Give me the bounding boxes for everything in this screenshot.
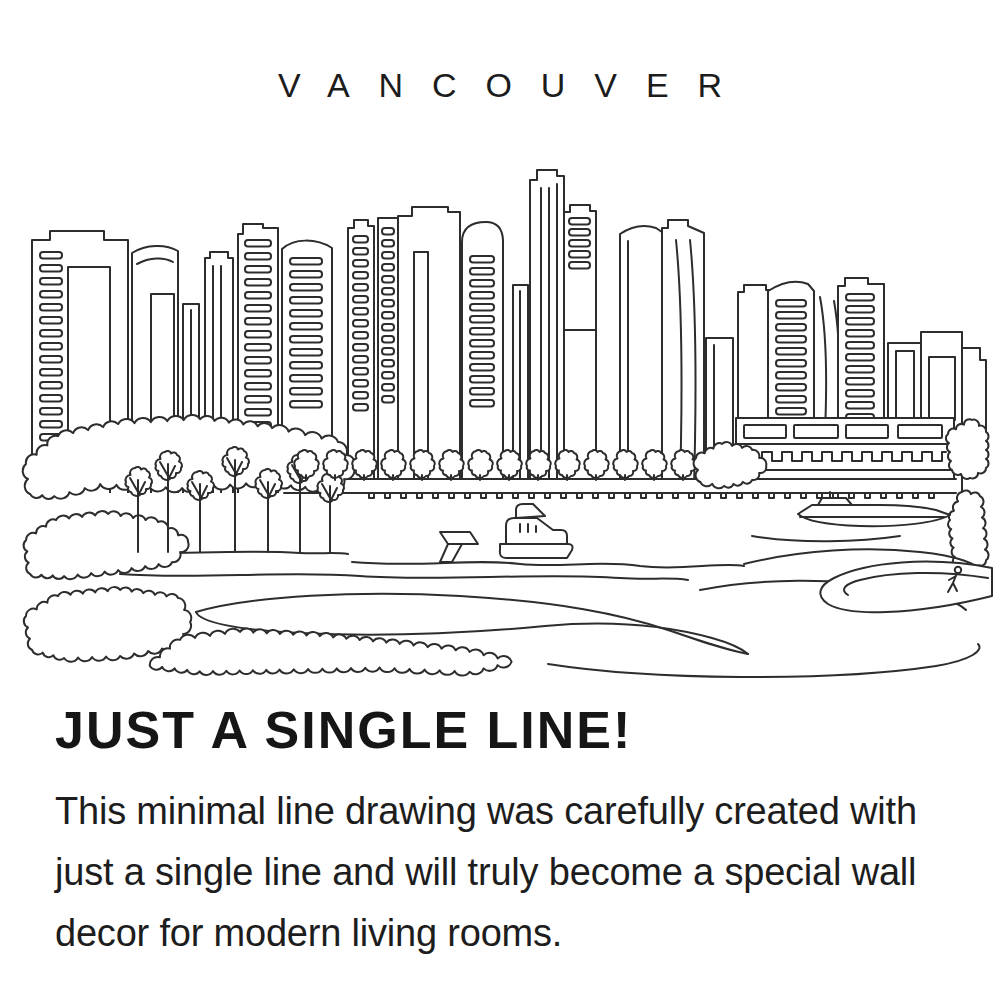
tagline-heading: JUST A SINGLE LINE! <box>55 700 632 760</box>
window-stripe <box>776 348 806 355</box>
window-stripe <box>470 268 494 275</box>
window-stripe <box>40 343 62 350</box>
window-stripe <box>40 408 62 415</box>
window-stripe <box>776 384 806 391</box>
window-stripe <box>245 331 271 338</box>
window-stripe <box>776 360 806 367</box>
window-stripe <box>245 396 271 403</box>
window-stripe <box>353 332 368 339</box>
window-stripe <box>382 264 394 271</box>
window-stripe <box>40 304 62 311</box>
window-stripe <box>290 323 322 330</box>
window-stripe <box>245 266 271 273</box>
window-stripe <box>382 300 394 307</box>
window-stripe <box>353 356 368 363</box>
window-stripe <box>470 316 494 323</box>
window-stripe <box>470 292 494 299</box>
tree-cluster <box>946 419 989 479</box>
window-stripe <box>290 284 322 291</box>
window-stripe <box>353 236 368 243</box>
window-stripe <box>245 318 271 325</box>
window-stripe <box>846 402 874 409</box>
window-stripe <box>382 348 394 355</box>
window-stripe <box>290 297 322 304</box>
window-stripe <box>290 258 322 265</box>
window-stripe <box>382 324 394 331</box>
window-stripe <box>290 362 322 369</box>
window-stripe <box>290 336 322 343</box>
window-stripe <box>245 240 271 247</box>
window-stripe <box>382 384 394 391</box>
tree-cluster <box>948 490 988 571</box>
window-stripe <box>290 375 322 382</box>
window-stripe <box>846 366 874 373</box>
boat-cabin <box>818 498 852 505</box>
window-stripe <box>846 330 874 337</box>
window-stripe <box>353 380 368 387</box>
boat-hull <box>798 505 950 526</box>
window-stripe <box>569 240 590 247</box>
window-stripe <box>846 306 874 313</box>
window-stripe <box>353 368 368 375</box>
window-stripe <box>382 372 394 379</box>
window-stripe <box>353 392 368 399</box>
window-stripe <box>245 357 271 364</box>
window-stripe <box>290 271 322 278</box>
window-stripe <box>245 383 271 390</box>
window-stripe <box>569 218 590 225</box>
window-stripe <box>353 344 368 351</box>
window-stripe <box>245 409 271 416</box>
window-stripe <box>382 336 394 343</box>
window-stripe <box>40 421 62 428</box>
window-stripe <box>776 324 806 331</box>
window-stripe <box>353 308 368 315</box>
window-stripe <box>470 256 494 263</box>
window-stripe <box>245 305 271 312</box>
window-stripe <box>353 296 368 303</box>
promenade-mask <box>279 478 958 493</box>
dock-ramp <box>440 532 478 544</box>
window-stripe <box>470 304 494 311</box>
window-stripe <box>40 382 62 389</box>
window-stripe <box>353 248 368 255</box>
window-stripe <box>776 336 806 343</box>
window-stripe <box>382 312 394 319</box>
window-stripe <box>382 288 394 295</box>
promenade-tree <box>584 450 609 478</box>
window-stripe <box>245 253 271 260</box>
window-stripe <box>290 401 322 408</box>
window-stripe <box>846 378 874 385</box>
window-stripe <box>846 294 874 301</box>
window-stripe <box>776 312 806 319</box>
window-stripe <box>846 390 874 397</box>
window-stripe <box>382 240 394 247</box>
window-stripe <box>470 400 494 407</box>
window-stripe <box>353 260 368 267</box>
window-stripe <box>569 251 590 258</box>
window-stripe <box>470 388 494 395</box>
window-stripe <box>353 320 368 327</box>
window-stripe <box>776 372 806 379</box>
window-stripe <box>353 272 368 279</box>
description-text: This minimal line drawing was carefully … <box>55 781 963 963</box>
window-stripe <box>245 279 271 286</box>
window-stripe <box>846 354 874 361</box>
window-stripe <box>40 291 62 298</box>
window-stripe <box>40 330 62 337</box>
window-stripe <box>846 318 874 325</box>
window-stripe <box>470 352 494 359</box>
window-stripe <box>569 262 590 269</box>
window-stripe <box>382 252 394 259</box>
window-stripe <box>382 360 394 367</box>
window-stripe <box>245 344 271 351</box>
window-stripe <box>40 278 62 285</box>
window-stripe <box>382 396 394 403</box>
window-stripe <box>290 388 322 395</box>
window-stripe <box>470 280 494 287</box>
window-stripe <box>470 328 494 335</box>
window-stripe <box>40 356 62 363</box>
window-stripe <box>776 300 806 307</box>
window-stripe <box>846 342 874 349</box>
window-stripe <box>353 404 368 411</box>
window-stripe <box>40 395 62 402</box>
window-stripe <box>40 265 62 272</box>
window-stripe <box>470 364 494 371</box>
window-stripe <box>569 229 590 236</box>
window-stripe <box>382 276 394 283</box>
ferry-hull <box>500 544 573 558</box>
window-stripe <box>382 228 394 235</box>
window-stripe <box>245 292 271 299</box>
window-stripe <box>40 369 62 376</box>
window-stripe <box>776 408 806 415</box>
window-stripe <box>40 252 62 259</box>
window-stripe <box>40 317 62 324</box>
window-stripe <box>353 284 368 291</box>
window-stripe <box>470 376 494 383</box>
window-stripe <box>290 310 322 317</box>
window-stripe <box>470 340 494 347</box>
window-stripe <box>776 396 806 403</box>
window-stripe <box>290 349 322 356</box>
window-stripe <box>245 370 271 377</box>
